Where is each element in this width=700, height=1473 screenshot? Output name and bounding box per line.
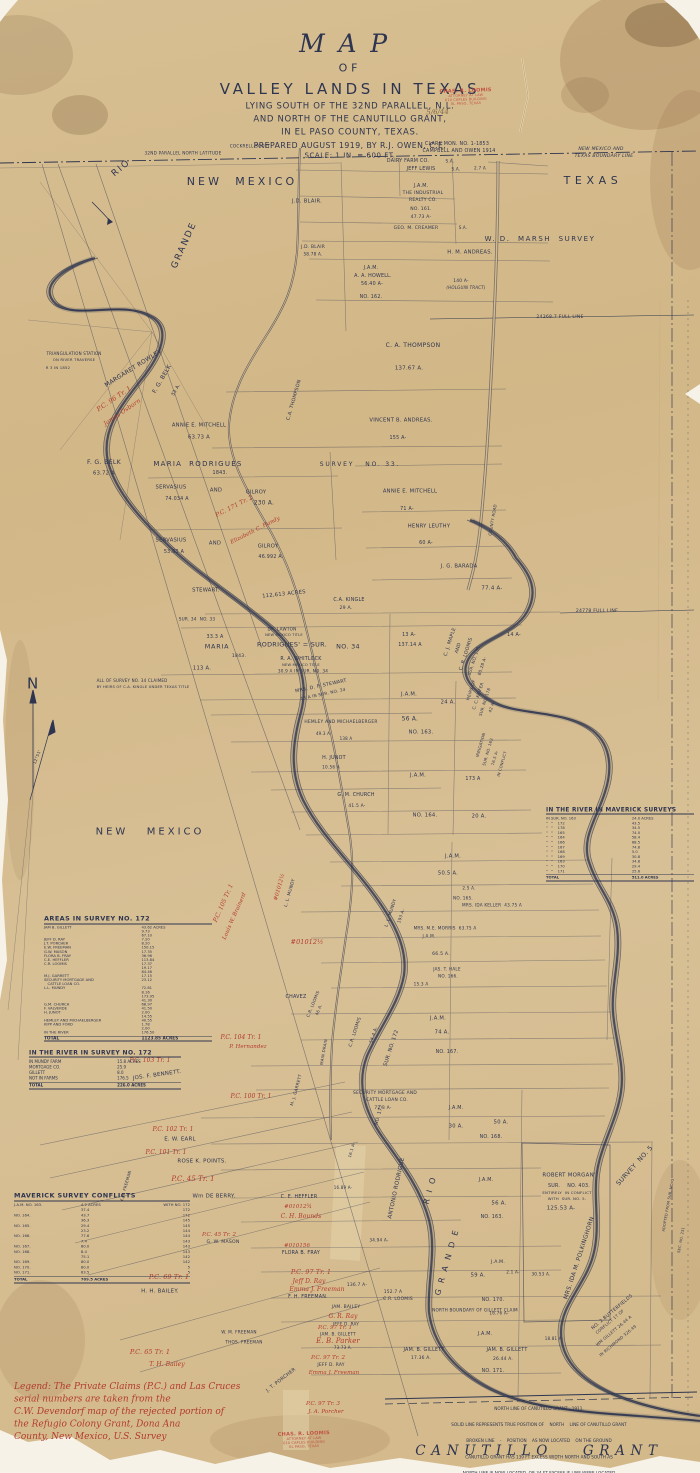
canal-and-road [229,148,498,1140]
paper-crack-shadow [520,58,528,132]
map-linework [0,0,700,1473]
map-page: MAP OF VALLEY LANDS IN TEXAS LYING SOUTH… [0,0,700,1473]
